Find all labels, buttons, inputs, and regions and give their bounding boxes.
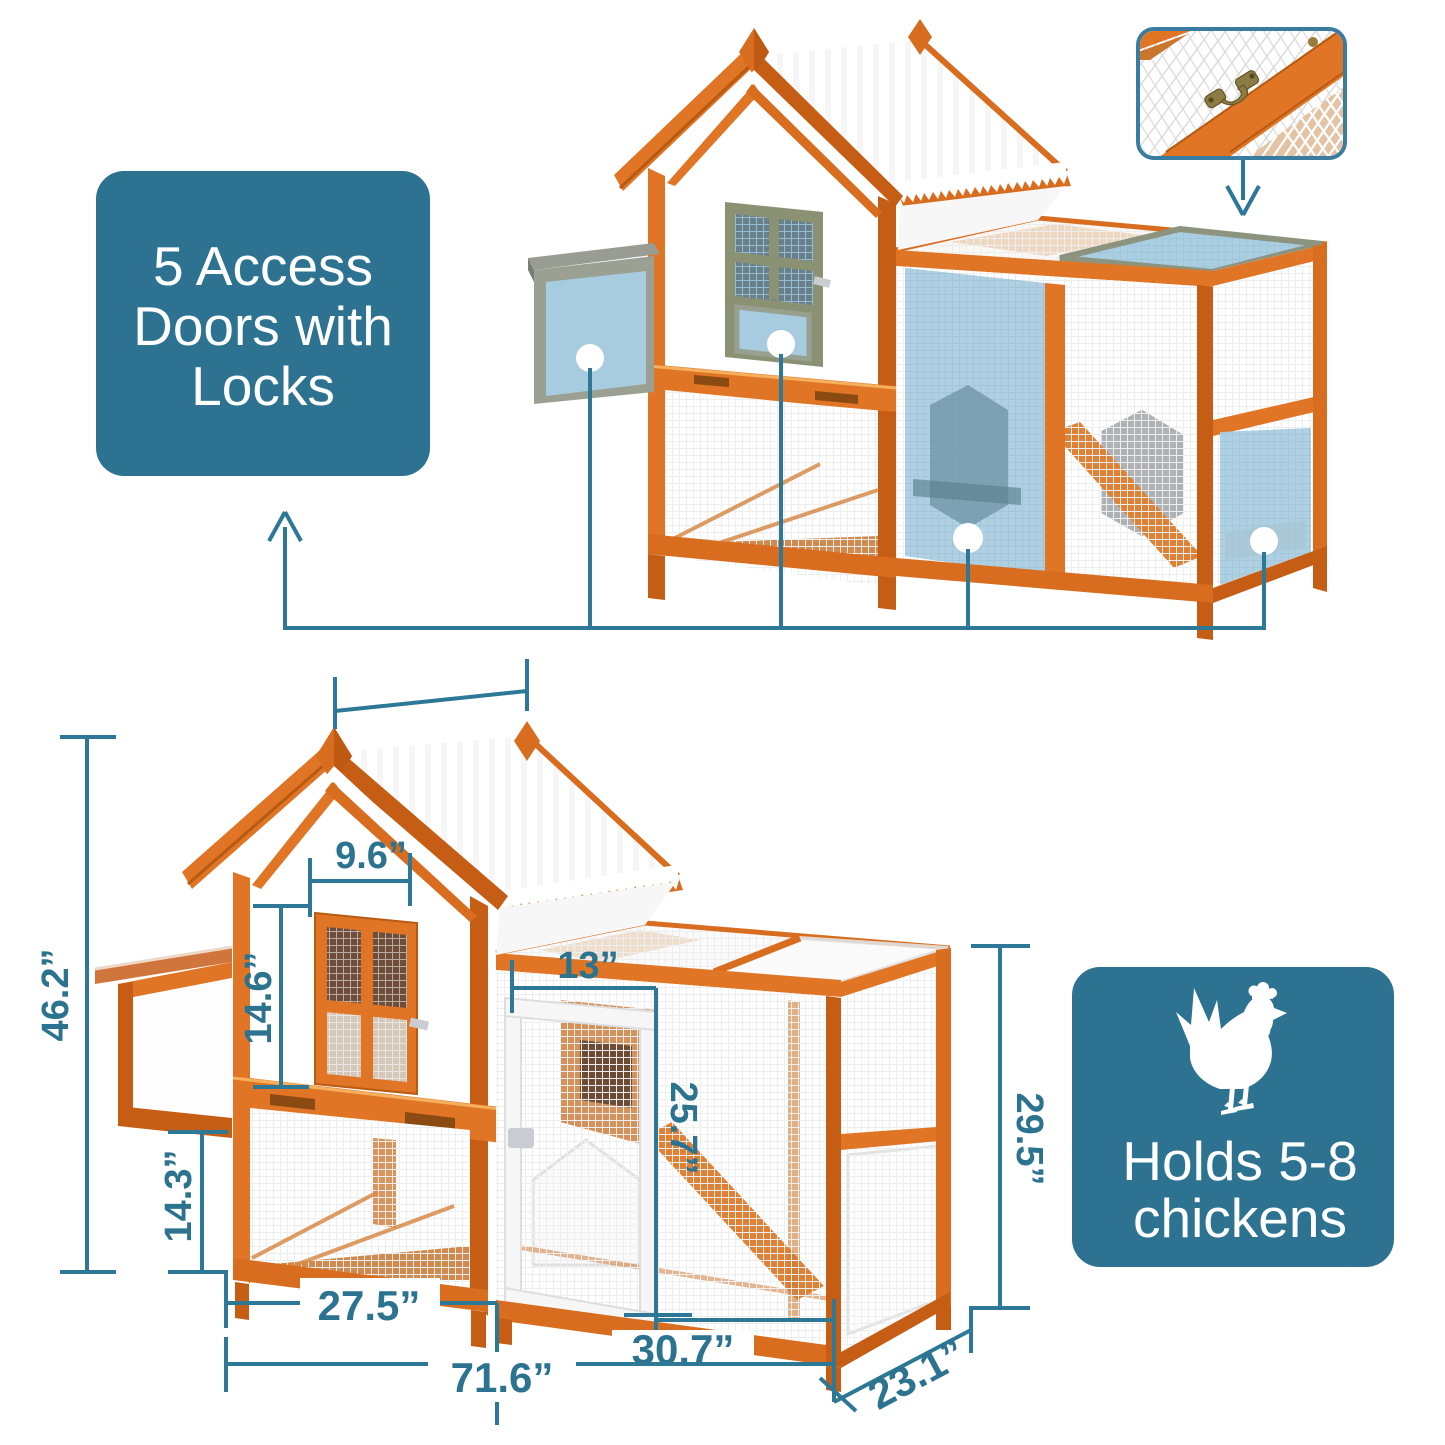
svg-text:5 Access: 5 Access	[153, 235, 373, 297]
svg-text:chickens: chickens	[1133, 1187, 1347, 1249]
svg-text:Locks: Locks	[191, 355, 335, 417]
svg-text:Doors with: Doors with	[133, 295, 393, 357]
svg-text:29.5”: 29.5”	[1008, 1093, 1050, 1186]
svg-text:Holds 5-8: Holds 5-8	[1122, 1130, 1357, 1192]
svg-text:71.6”: 71.6”	[451, 1354, 554, 1401]
svg-text:46.2”: 46.2”	[35, 949, 77, 1042]
svg-text:14.6”: 14.6”	[238, 952, 280, 1045]
svg-text:9.6”: 9.6”	[335, 835, 407, 877]
svg-text:13”: 13”	[557, 945, 618, 987]
svg-text:14.3”: 14.3”	[158, 1150, 200, 1243]
svg-text:27.5”: 27.5”	[318, 1282, 421, 1329]
svg-text:25.7”: 25.7”	[662, 1082, 704, 1175]
